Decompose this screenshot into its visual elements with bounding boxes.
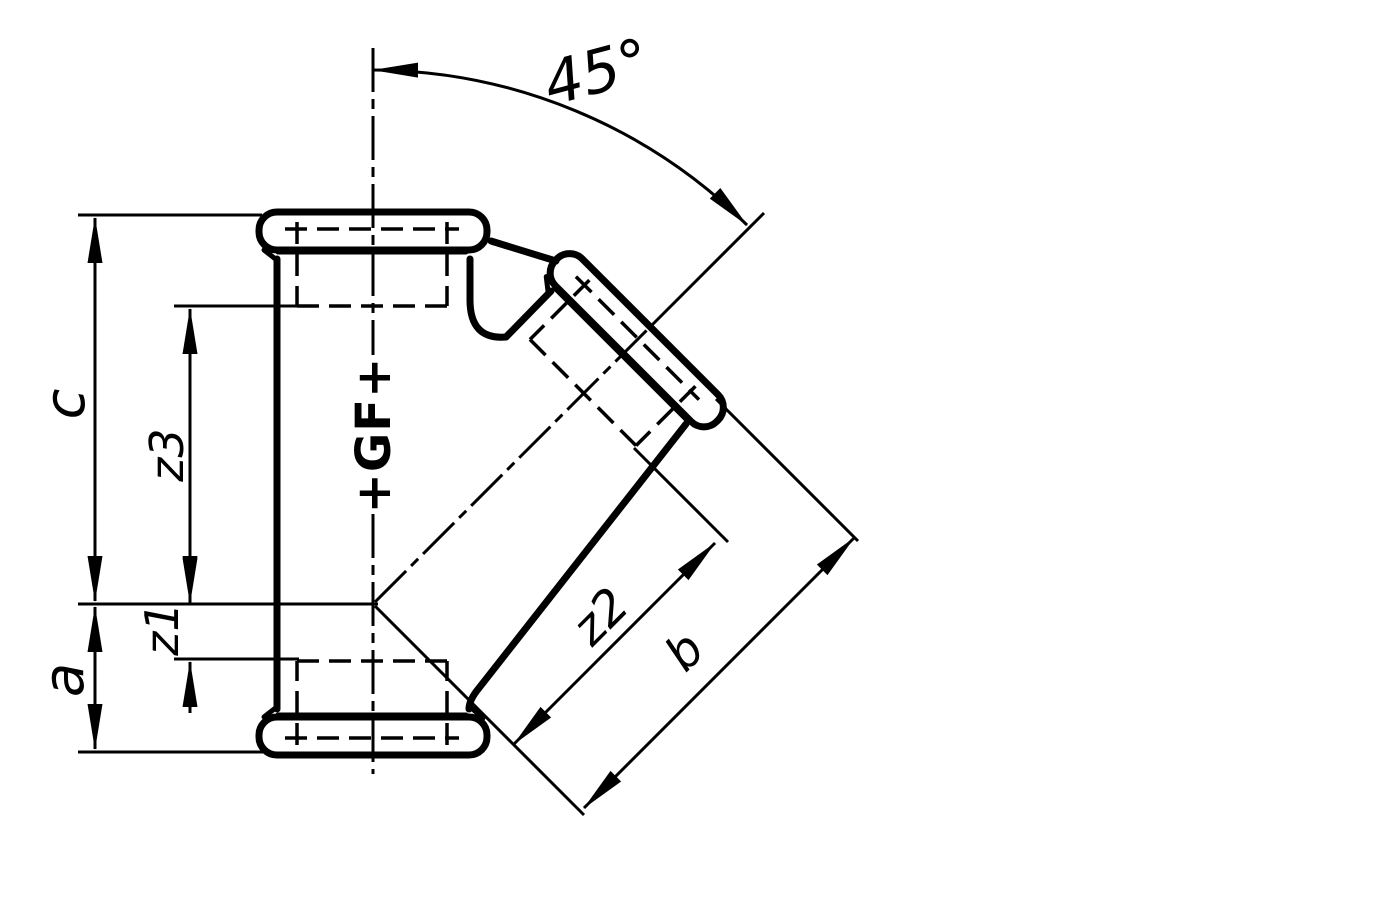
dim-label-c: c — [33, 388, 98, 419]
technical-drawing: +GF+ c z3 a z1 z2 b 45° — [0, 0, 1400, 900]
ext-branch-junction — [375, 606, 584, 815]
dim-label-z1: z1 — [135, 602, 189, 656]
gf-logo: +GF+ — [346, 357, 402, 514]
branch-centerline — [375, 328, 649, 602]
dim-line-b — [584, 538, 854, 808]
angle-extension-line — [649, 213, 764, 328]
ext-branch-thread-depth — [634, 448, 728, 542]
body-right-edge-armpit-fillet — [470, 259, 551, 337]
dim-label-45deg: 45° — [536, 25, 657, 120]
top-to-branch-chamfer — [491, 241, 556, 261]
dim-label-z2: z2 — [560, 577, 640, 657]
dim-label-a: a — [32, 663, 97, 697]
drawing-canvas: +GF+ c z3 a z1 z2 b 45° — [0, 0, 1400, 900]
dim-label-z3: z3 — [140, 428, 194, 482]
dim-label-b: b — [654, 621, 715, 682]
ext-branch-mouth — [716, 399, 858, 541]
